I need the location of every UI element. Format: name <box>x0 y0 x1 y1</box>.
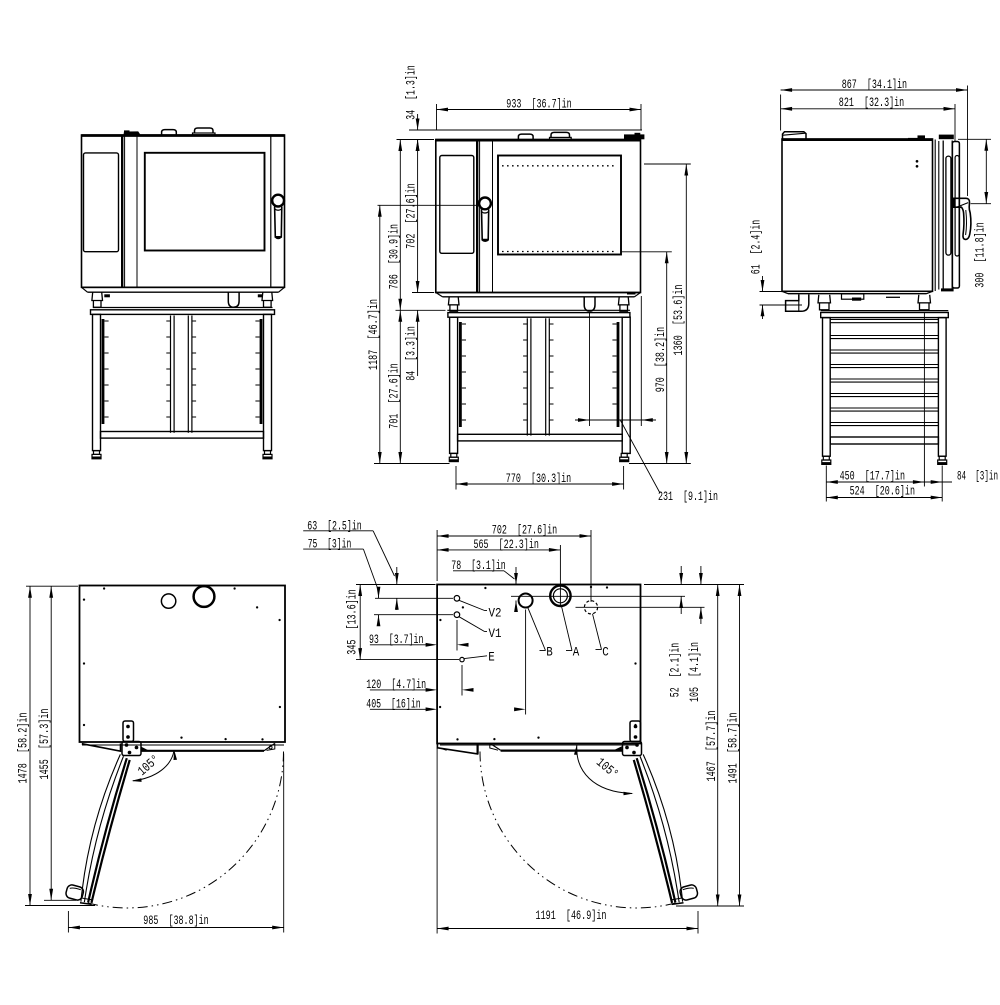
svg-text:821 [32.3]in: 821 [32.3]in <box>839 95 904 110</box>
svg-text:702 [27.6]in: 702 [27.6]in <box>492 523 557 538</box>
svg-text:770 [30.3]in: 770 [30.3]in <box>506 471 571 486</box>
svg-text:1187 [46.7]in: 1187 [46.7]in <box>366 299 381 370</box>
svg-text:701 [27.6]in: 701 [27.6]in <box>386 363 401 428</box>
svg-text:1467 [57.7]in: 1467 [57.7]in <box>704 711 719 782</box>
svg-text:E: E <box>488 650 495 665</box>
svg-text:34 [1.3]in: 34 [1.3]in <box>403 65 418 120</box>
svg-text:450 [17.7]in: 450 [17.7]in <box>840 469 905 484</box>
svg-text:786 [30.9]in: 786 [30.9]in <box>386 224 401 289</box>
svg-text:702 [27.6]in: 702 [27.6]in <box>404 183 419 248</box>
svg-text:A: A <box>573 645 580 660</box>
svg-text:84 [3.3]in: 84 [3.3]in <box>404 326 419 381</box>
svg-text:1455 [57.3]in: 1455 [57.3]in <box>37 709 52 780</box>
svg-text:V1: V1 <box>489 626 502 641</box>
svg-text:1360 [53.6]in: 1360 [53.6]in <box>671 285 686 356</box>
svg-text:985 [38.8]in: 985 [38.8]in <box>143 913 208 928</box>
svg-text:52 [2.1]in: 52 [2.1]in <box>667 643 682 698</box>
svg-text:867 [34.1]in: 867 [34.1]in <box>842 77 907 92</box>
svg-text:524 [20.6]in: 524 [20.6]in <box>850 484 915 499</box>
svg-text:1491 [58.7]in: 1491 [58.7]in <box>726 713 741 784</box>
svg-text:300 [11.8]in: 300 [11.8]in <box>972 222 987 287</box>
svg-text:105 [4.1]in: 105 [4.1]in <box>687 642 702 702</box>
svg-text:565 [22.3]in: 565 [22.3]in <box>474 537 539 552</box>
svg-text:61 [2.4]in: 61 [2.4]in <box>749 220 764 275</box>
svg-text:231 [9.1]in: 231 [9.1]in <box>658 489 718 504</box>
svg-text:1191 [46.9]in: 1191 [46.9]in <box>536 908 607 923</box>
svg-text:1478 [58.2]in: 1478 [58.2]in <box>16 713 31 784</box>
svg-text:B: B <box>546 645 553 660</box>
svg-text:970 [38.2]in: 970 [38.2]in <box>653 327 668 392</box>
svg-text:C: C <box>602 645 609 660</box>
svg-text:84 [3]in: 84 [3]in <box>957 469 998 484</box>
svg-text:345 [13.6]in: 345 [13.6]in <box>345 589 360 654</box>
svg-text:933 [36.7]in: 933 [36.7]in <box>506 96 571 111</box>
svg-text:V2: V2 <box>489 606 502 621</box>
